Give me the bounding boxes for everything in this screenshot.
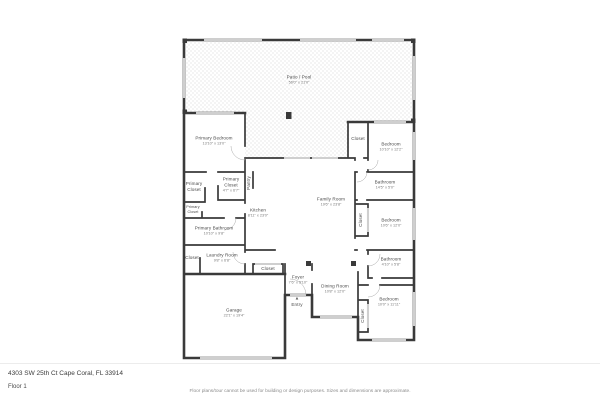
- room-label-dining-room: Dining Room 10'8" x 12'0": [321, 283, 349, 294]
- room-label-primary-closet-mid: Primary Closet 4'7" x 6'7": [220, 176, 242, 193]
- room-label-closet-bottom-right: Closet: [360, 309, 366, 323]
- disclaimer-text: Floor plans/tour cannot be used for buil…: [0, 389, 600, 394]
- room-label-closet-mid-right: Closet: [358, 213, 364, 227]
- floorplan-drawing: [0, 0, 600, 400]
- room-label-entry: Entry: [291, 302, 302, 308]
- footer-divider: [0, 363, 600, 364]
- room-label-primary-closet-left: Primary Closet: [183, 181, 205, 193]
- room-label-foyer: Foyer 7'6" x 5'10": [289, 274, 308, 285]
- room-label-primary-bedroom: Primary Bedroom 13'10" x 13'0": [195, 135, 232, 146]
- room-label-laundry-room: Laundry Room 9'8" x 6'8": [206, 252, 237, 263]
- room-label-kitchen: Kitchen 8'11" x 23'0": [248, 207, 269, 218]
- room-label-family-room: Family Room 19'6" x 23'8": [317, 196, 345, 207]
- room-label-patio-pool: Patio / Pool 56'0" x 21'0": [287, 74, 312, 85]
- room-label-closet-laundry: Closet: [181, 255, 203, 261]
- room-label-garage: Garage 22'1" x 19'4": [224, 307, 245, 318]
- room-label-closet-top-right: Closet: [351, 136, 365, 142]
- room-label-bedroom-mid-right: Bedroom 10'6" x 12'0": [381, 217, 402, 228]
- room-label-bedroom-top-right: Bedroom 10'10" x 12'2": [380, 141, 403, 152]
- property-address: 4303 SW 25th Ct Cape Coral, FL 33914: [8, 370, 123, 377]
- room-label-primary-bathroom: Primary Bathroom 10'10" x 9'8": [195, 225, 234, 236]
- entry-arrow-icon: ▲: [295, 296, 299, 301]
- room-label-bathroom-bottom-right: Bathroom 4'10" x 5'8": [381, 256, 402, 267]
- room-label-pantry: Pantry: [246, 176, 252, 190]
- room-label-closet-garage: Closet: [261, 266, 275, 272]
- floorplan-sheet: Patio / Pool 56'0" x 21'0" Primary Bedro…: [0, 0, 600, 400]
- room-label-bedroom-bottom-right: Bedroom 10'0" x 11'11": [378, 296, 400, 307]
- room-label-primary-closet-small: Primary Closet: [182, 205, 204, 215]
- room-label-bathroom-right: Bathroom 14'5" x 5'0": [375, 179, 396, 190]
